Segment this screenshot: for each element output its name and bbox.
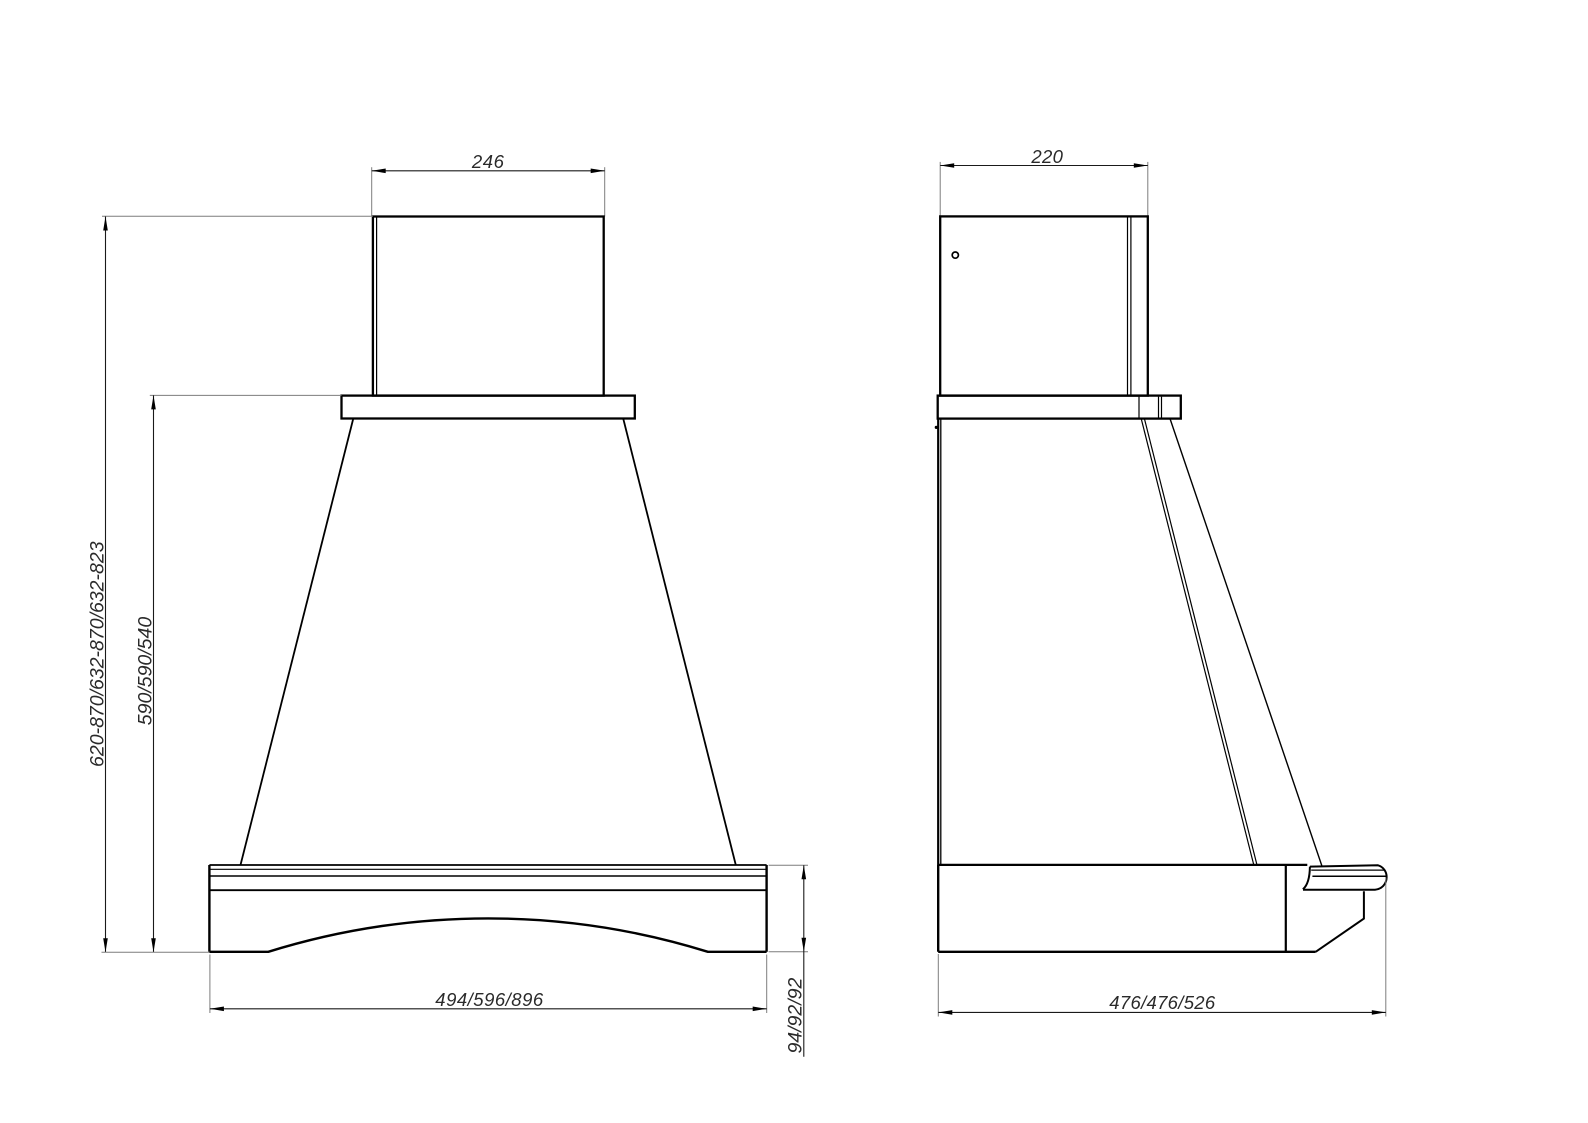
svg-text:246: 246 (471, 151, 505, 172)
svg-text:620-870/632-870/632-823: 620-870/632-870/632-823 (87, 541, 109, 767)
svg-text:476/476/526: 476/476/526 (1109, 992, 1216, 1013)
svg-text:94/92/92: 94/92/92 (785, 977, 807, 1053)
svg-text:590/590/540: 590/590/540 (135, 617, 157, 726)
svg-text:494/596/896: 494/596/896 (435, 989, 544, 1010)
svg-text:220: 220 (1030, 146, 1063, 167)
